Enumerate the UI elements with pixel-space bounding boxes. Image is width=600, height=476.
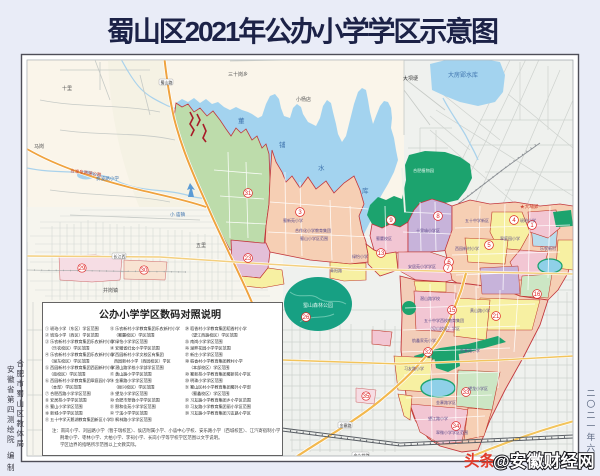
svg-text:⑩ 新城小学学区范围: ⑩ 新城小学学区范围 bbox=[45, 410, 83, 416]
svg-text:（蜀鑫校区）学区范围: （蜀鑫校区）学区范围 bbox=[189, 390, 229, 396]
svg-text:小杨店: 小杨店 bbox=[296, 96, 311, 103]
svg-text:⑰ 黄山路小学学区范围: ⑰ 黄山路小学学区范围 bbox=[110, 371, 152, 377]
svg-text:@安徽财经网: @安徽财经网 bbox=[493, 451, 595, 471]
svg-text:青阳路: 青阳路 bbox=[330, 267, 342, 273]
svg-text:合肥植物园: 合肥植物园 bbox=[413, 167, 434, 174]
svg-text:望江路小学: 望江路小学 bbox=[428, 415, 448, 421]
svg-text:（望江西路校区）学区范围: （望江西路校区）学区范围 bbox=[189, 332, 238, 338]
svg-text:五十中学西校教育集团: 五十中学西校教育集团 bbox=[424, 317, 464, 323]
svg-text:蜀山小学区范围: 蜀山小学区范围 bbox=[300, 235, 328, 241]
svg-text:26: 26 bbox=[303, 315, 310, 321]
svg-text:蜀新苑小学: 蜀新苑小学 bbox=[283, 217, 303, 223]
svg-text:⑱ 金寨路小学学区范围: ⑱ 金寨路小学学区范围 bbox=[110, 377, 152, 383]
svg-text:荆墩小学、枣林小学、大柏小学、李祠小学、长岗小学等学校学区范: 荆墩小学、枣林小学、大柏小学、李祠小学、长岗小学等学校学区范围以文字说明。 bbox=[60, 434, 222, 441]
svg-text:三十岗乡: 三十岗乡 bbox=[228, 71, 248, 78]
svg-text:头条: 头条 bbox=[464, 451, 496, 470]
svg-text:㉞ 习友路小学教育集团习友路小学区: ㉞ 习友路小学教育集团习友路小学区 bbox=[185, 410, 251, 416]
svg-text:⑫ 乐农新村小学教育集团乐农新村小学: ⑫ 乐农新村小学教育集团乐农新村小学 bbox=[110, 325, 180, 331]
svg-text:绿怡小学: 绿怡小学 bbox=[352, 253, 368, 259]
svg-text:乐农新村: 乐农新村 bbox=[540, 245, 556, 251]
svg-text:长江西: 长江西 bbox=[114, 253, 126, 259]
svg-text:（本部校区）学区范围: （本部校区）学区范围 bbox=[189, 364, 229, 370]
svg-text:航鑫家苑小学: 航鑫家苑小学 bbox=[412, 337, 436, 343]
svg-text:马岗: 马岗 bbox=[34, 143, 44, 150]
svg-text:金寨路小学: 金寨路小学 bbox=[460, 347, 480, 353]
svg-text:33: 33 bbox=[463, 390, 470, 396]
svg-text:16: 16 bbox=[534, 292, 541, 298]
svg-text:㉘ 稻香村小学教育集团教村小学: ㉘ 稻香村小学教育集团教村小学 bbox=[185, 358, 243, 364]
svg-text:（见山校区）学区: （见山校区）学区 bbox=[428, 325, 460, 331]
svg-text:翠微小学学区范围: 翠微小学学区范围 bbox=[436, 429, 468, 435]
svg-text:习友路小学: 习友路小学 bbox=[404, 365, 424, 371]
svg-text:学区边界的指略所示范围以上文教实际。: 学区边界的指略所示范围以上文教实际。 bbox=[60, 441, 139, 448]
svg-text:翠庭园小学: 翠庭园小学 bbox=[500, 235, 520, 241]
svg-text:㉛ 蜀山区村小学教育集团蜀外小学部: ㉛ 蜀山区村小学教育集团蜀外小学部 bbox=[185, 384, 251, 390]
svg-text:（蜀麓校区）学区范围: （蜀麓校区）学区范围 bbox=[114, 332, 154, 338]
svg-text:五里: 五里 bbox=[196, 243, 206, 249]
svg-text:⑤ 西园新村小学教育集团西园新村小学: ⑤ 西园新村小学教育集团西园新村小学 bbox=[45, 364, 115, 370]
svg-text:潜山路学校: 潜山路学校 bbox=[420, 295, 440, 301]
svg-text:⑮ 西园新村小学文校区有集团: ⑮ 西园新村小学文校区有集团 bbox=[110, 351, 164, 357]
svg-text:★大埔郢: ★大埔郢 bbox=[520, 203, 539, 210]
svg-text:琥珀小学: 琥珀小学 bbox=[520, 217, 536, 223]
svg-text:井岗镇: 井岗镇 bbox=[103, 287, 118, 294]
svg-text:㉜ 习友路小学教育集团乡小学区范围: ㉜ 习友路小学教育集团乡小学区范围 bbox=[185, 397, 251, 403]
svg-text:㉝ 习友路小学教育集团丽小学区范围: ㉝ 习友路小学教育集团丽小学区范围 bbox=[185, 403, 251, 409]
svg-text:合作化小学教育集团: 合作化小学教育集团 bbox=[295, 227, 331, 233]
svg-text:大坝埂: 大坝埂 bbox=[403, 75, 418, 82]
svg-text:30: 30 bbox=[141, 268, 148, 274]
svg-text:⑧ 安居苑小学学区范围: ⑧ 安居苑小学学区范围 bbox=[45, 397, 87, 403]
svg-text:㉑ 颐和佳苑小学学区范围: ㉑ 颐和佳苑小学学区范围 bbox=[110, 403, 156, 409]
svg-text:十里: 十里 bbox=[62, 85, 72, 92]
svg-text:公办小学学区数码对照说明: 公办小学学区数码对照说明 bbox=[99, 308, 221, 321]
svg-text:西园新村小学（西园校区）学区: 西园新村小学（西园校区）学区 bbox=[114, 358, 171, 364]
svg-text:23: 23 bbox=[245, 256, 252, 262]
svg-text:（本部）学区范围: （本部）学区范围 bbox=[49, 384, 81, 390]
svg-text:西园新村小学: 西园新村小学 bbox=[455, 245, 479, 251]
svg-text:小 庙镇: 小 庙镇 bbox=[170, 211, 185, 218]
svg-text:㉓ 枫林路小学学区范围: ㉓ 枫林路小学学区范围 bbox=[110, 416, 152, 422]
svg-text:⑲ 望龙小学学区范围: ⑲ 望龙小学学区范围 bbox=[110, 390, 148, 396]
svg-text:21: 21 bbox=[493, 314, 500, 320]
svg-text:（南校区）学区范围: （南校区）学区范围 bbox=[49, 371, 85, 377]
svg-text:库: 库 bbox=[362, 186, 369, 195]
svg-text:（乐农校区）学区范围: （乐农校区）学区范围 bbox=[49, 345, 89, 351]
svg-text:蜀山森林公园: 蜀山森林公园 bbox=[303, 302, 333, 309]
svg-text:13: 13 bbox=[378, 251, 385, 257]
svg-text:金寨路学区: 金寨路学区 bbox=[436, 399, 456, 405]
svg-text:31: 31 bbox=[245, 191, 252, 197]
svg-text:⑪ 五十中学天鹅湖教育集团新区小学: ⑪ 五十中学天鹅湖教育集团新区小学 bbox=[45, 416, 111, 422]
svg-text:五十中学新区: 五十中学新区 bbox=[465, 217, 489, 223]
svg-text:29: 29 bbox=[79, 266, 86, 272]
svg-text:安居苑小学学区: 安居苑小学学区 bbox=[408, 263, 436, 269]
svg-text:大房郢水库: 大房郢水库 bbox=[448, 71, 478, 79]
svg-text:望龙小学区: 望龙小学区 bbox=[468, 385, 488, 391]
svg-text:⑯ 潜山路学校小学部学区范围: ⑯ 潜山路学校小学部学区范围 bbox=[110, 364, 164, 370]
svg-text:㉒ 宁溪小学学区范围: ㉒ 宁溪小学学区范围 bbox=[110, 410, 148, 416]
svg-text:⑦ 合肥西路小学学区范围: ⑦ 合肥西路小学学区范围 bbox=[45, 390, 91, 396]
svg-text:⑥ 西园新村小学教育集团翠庭园小学: ⑥ 西园新村小学教育集团翠庭园小学 bbox=[45, 377, 111, 383]
svg-text:注：南岗小学、刘园路小学（暂于瑞校区）、侯店附属小学、小庙中: 注：南岗小学、刘园路小学（暂于瑞校区）、侯店附属小学、小庙中心学校、安乐路小学（… bbox=[52, 427, 281, 434]
svg-text:铺: 铺 bbox=[279, 140, 286, 149]
svg-text:㉔ 稻香村小学教育集团稻香村小学: ㉔ 稻香村小学教育集团稻香村小学 bbox=[185, 325, 247, 331]
svg-text:35: 35 bbox=[363, 394, 370, 400]
svg-text:⑭ 安徽省妇女小学学区范围: ⑭ 安徽省妇女小学学区范围 bbox=[110, 345, 160, 351]
svg-text:⑬ 绿怡小学学区范围: ⑬ 绿怡小学学区范围 bbox=[110, 338, 148, 344]
svg-text:金寨路: 金寨路 bbox=[340, 422, 352, 428]
svg-text:15: 15 bbox=[449, 308, 456, 314]
svg-text:（湖东校区）学区范围: （湖东校区）学区范围 bbox=[49, 358, 89, 364]
svg-text:⑨ 蜀山小学学区范围: ⑨ 蜀山小学学区范围 bbox=[45, 403, 83, 409]
svg-text:32: 32 bbox=[425, 350, 432, 356]
svg-text:㉕ 南岗小学学区范围: ㉕ 南岗小学学区范围 bbox=[185, 338, 223, 344]
svg-text:董: 董 bbox=[238, 116, 245, 125]
svg-text:蜀山路: 蜀山路 bbox=[161, 79, 173, 85]
svg-text:③ 乐农新村小学教育集团乐农新村小学: ③ 乐农新村小学教育集团乐农新村小学 bbox=[45, 338, 115, 344]
svg-text:十里庙小学区: 十里庙小学区 bbox=[416, 227, 440, 233]
svg-text:蜀麓校区: 蜀麓校区 bbox=[376, 235, 392, 241]
svg-text:② 琥珀小学（西区）学区范围: ② 琥珀小学（西区）学区范围 bbox=[45, 332, 99, 338]
svg-text:蜀山区2021年公办小学学区示意图: 蜀山区2021年公办小学学区示意图 bbox=[107, 15, 499, 47]
svg-text:④ 乐农新村小学教育集团乐农新村小学: ④ 乐农新村小学教育集团乐农新村小学 bbox=[45, 351, 115, 357]
svg-text:（振兴校区）学区范围: （振兴校区）学区范围 bbox=[114, 384, 154, 390]
svg-text:㉙ 蜀新苑小学教育集团蜀新苑小学区: ㉙ 蜀新苑小学教育集团蜀新苑小学区 bbox=[185, 371, 251, 377]
svg-text:⑳ 合肥市翠微小学学区范围: ⑳ 合肥市翠微小学学区范围 bbox=[110, 397, 160, 403]
svg-text:㉖ 湖畔花园小学学区范围: ㉖ 湖畔花园小学学区范围 bbox=[185, 345, 231, 351]
svg-text:㉗ 新庄小学学区范围: ㉗ 新庄小学学区范围 bbox=[185, 351, 223, 357]
svg-text:合肥市蜀山区教体局: 合肥市蜀山区教体局 bbox=[17, 358, 25, 448]
svg-text:① 琥珀小学（东区）学区范围: ① 琥珀小学（东区）学区范围 bbox=[45, 325, 99, 331]
svg-text:水: 水 bbox=[318, 163, 325, 172]
svg-text:㉚ 明珠小学学区范围: ㉚ 明珠小学学区范围 bbox=[185, 377, 223, 383]
svg-text:黄山路小学: 黄山路小学 bbox=[470, 307, 490, 313]
